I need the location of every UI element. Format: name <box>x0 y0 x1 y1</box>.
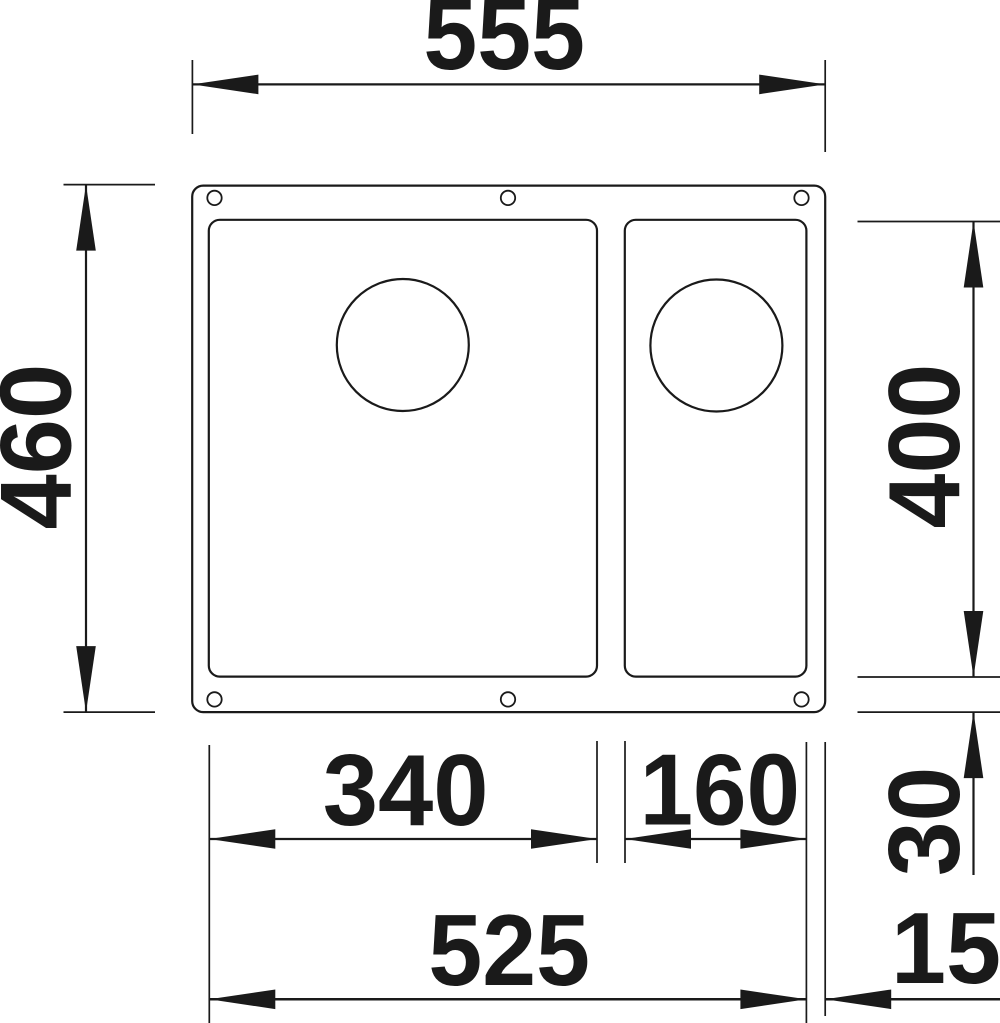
svg-text:555: 555 <box>423 0 585 91</box>
svg-text:460: 460 <box>0 364 93 530</box>
svg-text:340: 340 <box>323 735 489 847</box>
svg-text:15: 15 <box>891 893 1000 1005</box>
svg-text:160: 160 <box>640 735 800 847</box>
svg-text:30: 30 <box>869 767 981 877</box>
svg-text:525: 525 <box>428 895 590 1007</box>
svg-text:400: 400 <box>869 364 981 529</box>
